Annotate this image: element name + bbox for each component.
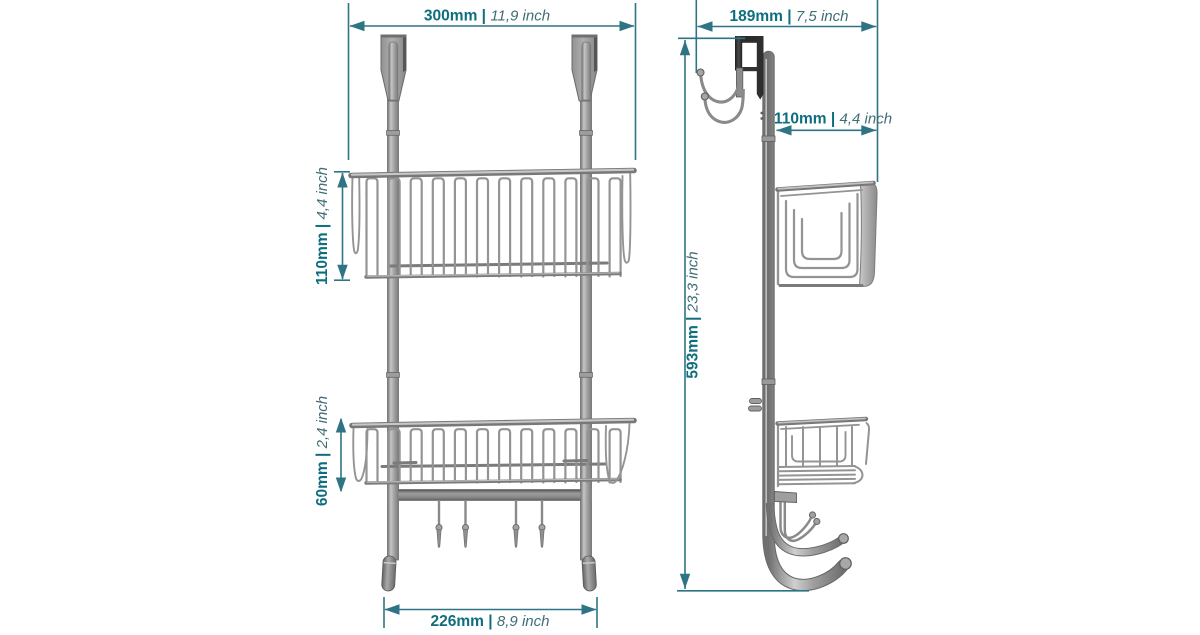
- svg-text:593mm | 23,3 inch: 593mm | 23,3 inch: [685, 251, 702, 378]
- svg-text:110mm | 4,4 inch: 110mm | 4,4 inch: [314, 167, 331, 285]
- svg-text:110mm | 4,4 inch: 110mm | 4,4 inch: [774, 111, 892, 128]
- svg-text:189mm | 7,5 inch: 189mm | 7,5 inch: [730, 8, 849, 25]
- svg-text:300mm | 11,9 inch: 300mm | 11,9 inch: [424, 8, 550, 25]
- svg-text:60mm | 2,4 inch: 60mm | 2,4 inch: [314, 396, 331, 506]
- svg-text:226mm | 8,9 inch: 226mm | 8,9 inch: [431, 613, 550, 630]
